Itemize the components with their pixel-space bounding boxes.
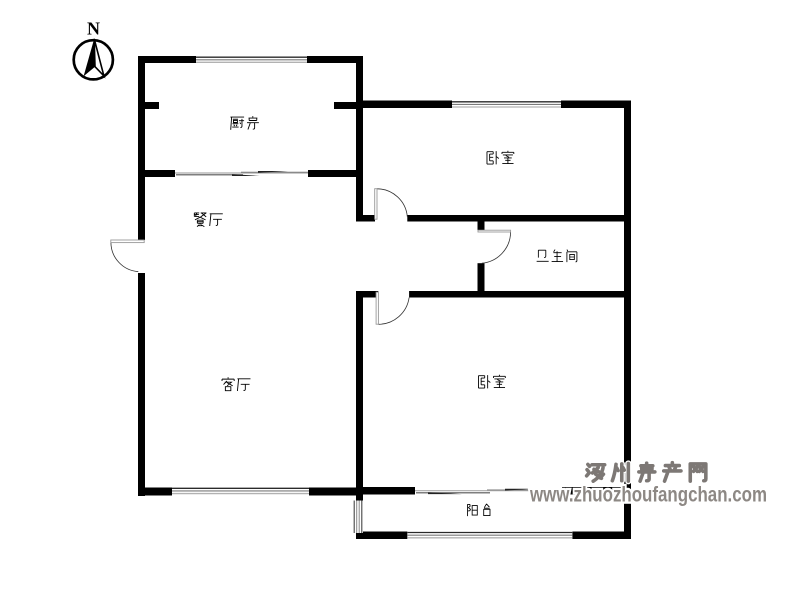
svg-text:N: N xyxy=(87,19,100,39)
svg-text:www.zhuozhoufangchan.com: www.zhuozhoufangchan.com xyxy=(529,484,767,507)
